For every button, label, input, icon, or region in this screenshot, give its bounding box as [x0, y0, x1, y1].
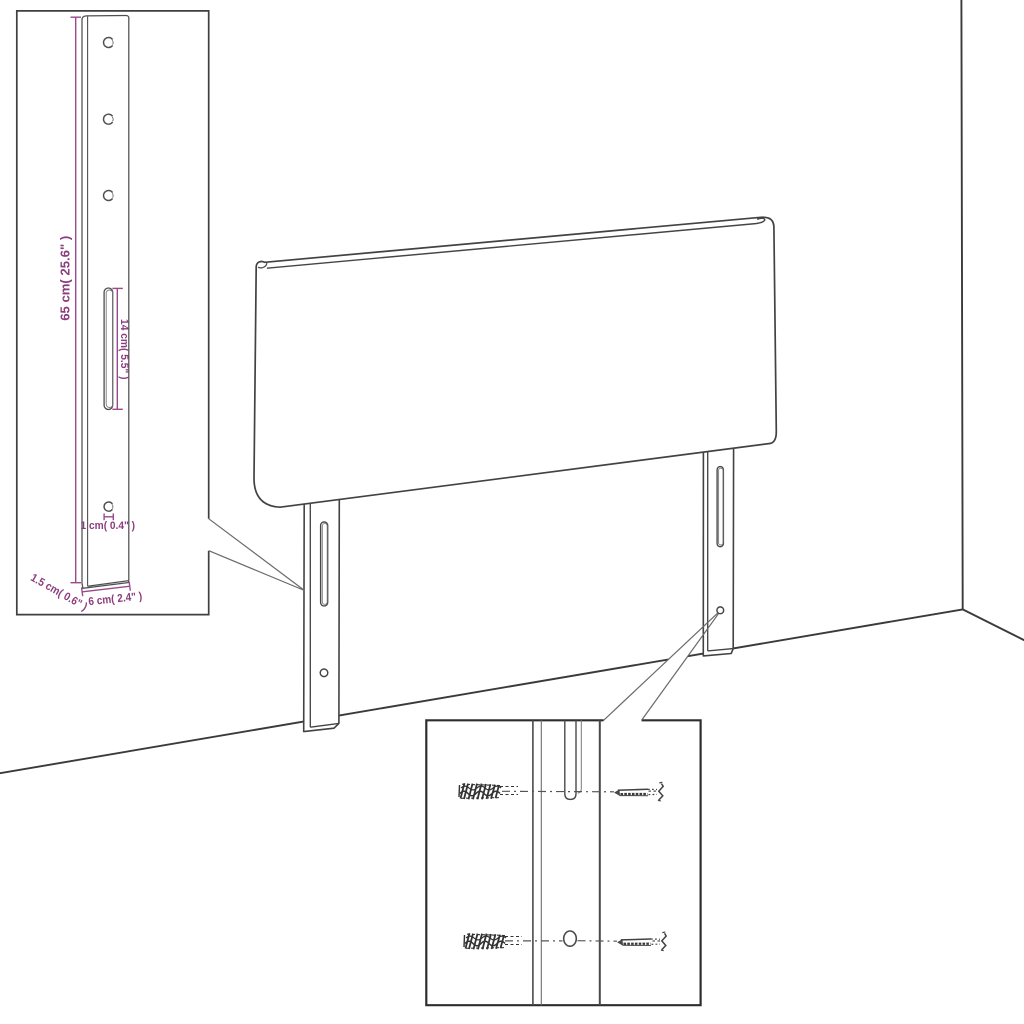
- svg-text:14 cm( 5.5" ): 14 cm( 5.5" ): [118, 319, 130, 380]
- svg-text:65 cm( 25.6" ): 65 cm( 25.6" ): [59, 236, 73, 321]
- svg-text:1 cm( 0.4" ): 1 cm( 0.4" ): [81, 520, 136, 532]
